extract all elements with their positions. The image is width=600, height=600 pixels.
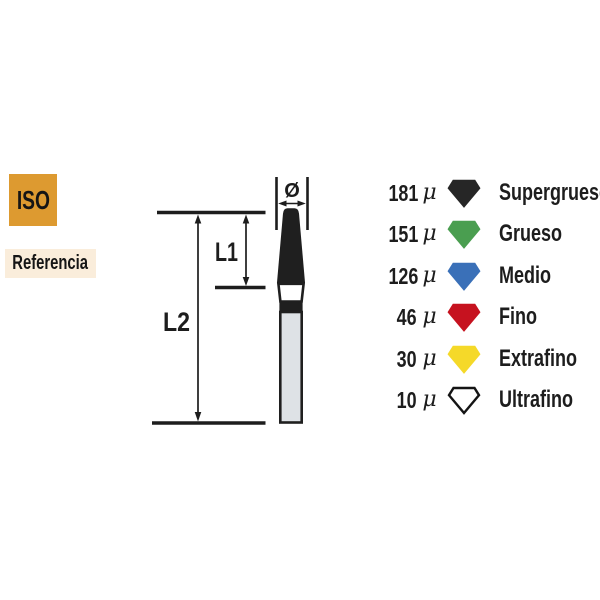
grit-grade-label: Grueso (499, 220, 562, 248)
grit-grade-label: Fino (499, 303, 537, 331)
grit-microns: 10 (397, 386, 417, 414)
iso-tag: ISO (9, 174, 57, 226)
diamond-shape (449, 388, 479, 413)
micron-symbol: μ (421, 386, 438, 414)
diamond-grit-icon (447, 386, 481, 415)
infographic-canvas: ISO Referencia L1 L2 Ø (0, 0, 600, 600)
grit-microns: 151 (388, 220, 418, 248)
iso-tag-label: ISO (16, 185, 49, 216)
micron-symbol: μ (421, 303, 438, 331)
referencia-tag-label: Referencia (13, 252, 89, 275)
legend-row-fino: 46 μ Fino (380, 303, 550, 331)
grit-grade-label: Extrafino (499, 345, 577, 373)
diamond-shape (449, 305, 479, 330)
diameter-symbol: Ø (284, 180, 300, 202)
l1-arrow (243, 215, 250, 287)
grit-grade-label: Ultrafino (499, 386, 573, 414)
micron-symbol: μ (421, 345, 438, 373)
legend-row-supergrueso: 181 μ Supergrueso (380, 179, 600, 207)
diamond-shape (449, 222, 479, 247)
legend-row-extrafino: 30 μ Extrafino (380, 345, 600, 373)
diamond-shape (449, 347, 479, 372)
legend-row-grueso: 151 μ Grueso (380, 220, 583, 248)
bur-dimension-diagram: L1 L2 Ø (148, 165, 320, 435)
micron-symbol: μ (421, 220, 438, 248)
diamond-grit-icon (447, 303, 481, 332)
grit-grade-label: Medio (499, 262, 551, 290)
micron-symbol: μ (421, 262, 438, 290)
bur-neck (278, 284, 303, 302)
legend-row-ultrafino: 10 μ Ultrafino (380, 386, 598, 414)
referencia-tag: Referencia (5, 249, 96, 278)
diamond-shape (449, 181, 479, 206)
l1-dimension-label: L1 (215, 237, 238, 267)
l2-dimension-label: L2 (163, 307, 190, 337)
diamond-grit-icon (447, 179, 481, 208)
grit-microns: 181 (388, 179, 418, 207)
bur-working-tip (277, 208, 305, 282)
micron-symbol: μ (421, 179, 438, 207)
l2-arrow (195, 215, 202, 422)
grit-microns: 30 (397, 345, 417, 373)
diamond-grit-icon (447, 220, 481, 249)
legend-row-medio: 126 μ Medio (380, 262, 568, 290)
grit-grade-label: Supergrueso (499, 179, 600, 207)
grit-microns: 46 (397, 303, 417, 331)
diamond-grit-icon (447, 262, 481, 291)
bur-shank (280, 312, 301, 423)
diamond-grit-icon (447, 345, 481, 374)
diamond-shape (449, 264, 479, 289)
grit-microns: 126 (388, 262, 418, 290)
